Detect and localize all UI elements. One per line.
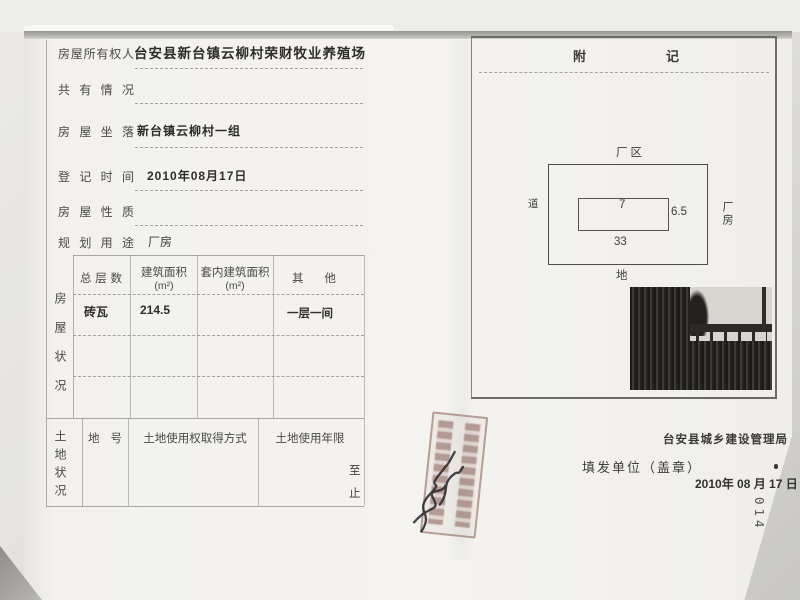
house-col-area: 建筑面积 (m²) (133, 267, 195, 293)
fence-posts-silhouette (696, 331, 767, 341)
field-label-owner: 房屋所有权人 (58, 45, 134, 62)
field-label-house-nature: 房屋性质 (58, 203, 134, 220)
issuer-label: 填发单位（盖章） (582, 457, 702, 476)
house-row-other: 一层一间 (287, 305, 333, 321)
issue-date: 2010年 08 月 17 日 (695, 475, 798, 492)
field-label-location: 房屋坐落 (58, 123, 134, 140)
diagram-building-label: 厂房 (719, 201, 735, 227)
field-value-registration-date: 2010年08月17日 (147, 167, 247, 184)
divider (479, 72, 769, 73)
land-col-acquisition: 土地使用权取得方式 (138, 433, 252, 446)
house-col-inner-area: 套内建筑面积 (m²) (199, 267, 271, 293)
house-col-floors: 总层数 (80, 273, 122, 286)
divider (135, 190, 363, 191)
diagram-road-label: 道 (528, 196, 539, 211)
building-photo (630, 287, 772, 390)
field-label-coownership: 共有情况 (58, 81, 134, 98)
land-col-term: 土地使用年限 (262, 433, 358, 446)
field-label-planned-use: 规划用途 (58, 234, 134, 251)
appendix-title: 附记 (573, 46, 759, 65)
house-row-floors: 砖瓦 (84, 303, 108, 320)
section-label-house-condition: 房屋状况 (52, 292, 69, 408)
section-label-land-condition: 土地状况 (52, 430, 69, 502)
land-col-parcel-no: 地号 (88, 433, 122, 446)
field-label-registration-date: 登记时间 (58, 168, 134, 185)
house-row-area: 214.5 (140, 303, 170, 317)
field-value-planned-use: 厂房 (148, 233, 172, 250)
diagram-inner-width: 7 (619, 199, 625, 211)
land-term-end: 止 (349, 485, 361, 501)
scanned-certificate-photo: 房屋所有权人 台安县新台镇云柳村荣财牧业养殖场 共有情况 房屋坐落 新台镇云柳村… (0, 0, 800, 600)
page-number: 014 (753, 497, 767, 543)
ink-dot (774, 464, 778, 469)
pole-silhouette (762, 287, 766, 332)
handwritten-signature (396, 443, 489, 540)
diagram-outer-width: 33 (614, 236, 627, 248)
authority-name: 台安县城乡建设管理局 (663, 431, 788, 447)
divider (135, 68, 363, 69)
divider (135, 103, 363, 104)
diagram-ground-label: 地 (616, 267, 628, 283)
house-col-other: 其他 (292, 273, 336, 286)
field-value-owner: 台安县新台镇云柳村荣财牧业养殖场 (134, 42, 366, 62)
land-term-to: 至 (349, 462, 361, 478)
diagram-top-label: 厂区 (616, 144, 645, 160)
divider (135, 147, 363, 148)
divider (135, 225, 363, 226)
field-value-location: 新台镇云柳村一组 (137, 122, 241, 139)
diagram-inner-height: 6.5 (671, 206, 687, 218)
photo-sky-area (690, 287, 772, 341)
